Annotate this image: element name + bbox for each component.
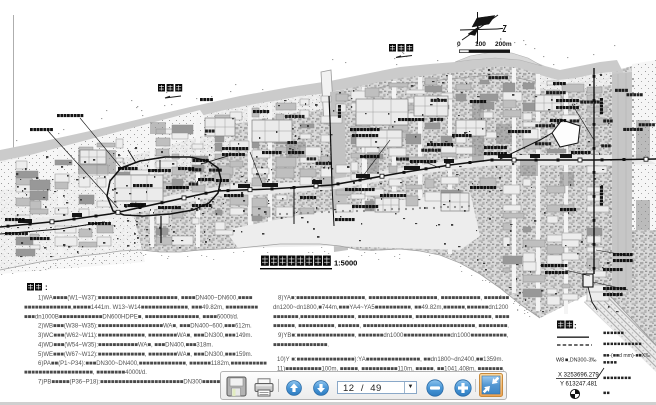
svg-text:‰: ‰ bbox=[591, 358, 597, 364]
svg-text:■■: ■■ bbox=[603, 390, 610, 396]
svg-text:■■■■■■■■■■■: ■■■■■■■■■■■ bbox=[603, 341, 642, 347]
svg-text:10)Y ■:■■■■■■■■■■■■■■■■):YA■■■: 10)Y ■:■■■■■■■■■■■■■■■■):YA■■■■■■■■■■■■■… bbox=[277, 357, 503, 363]
svg-text:■■■dn1000B■■■■■■■■■■■■DN600HDP: ■■■dn1000B■■■■■■■■■■■■DN600HDPE■, ■■■■■■… bbox=[24, 315, 239, 321]
svg-text:200m: 200m bbox=[495, 41, 512, 48]
svg-text:6)PA■■(P1~P34):■■■DN300~DN400,: 6)PA■■(P1~P34):■■■DN300~DN400,■■■■■■■■■■… bbox=[38, 361, 267, 367]
svg-text:■■■■■■■,■■■■■■■■■■■■■■■, ■■■■■: ■■■■■■■,■■■■■■■■■■■■■■■, ■■■■■■■■■■■■■■■… bbox=[273, 315, 510, 321]
svg-text:dn1200~dn1800,■744m,■■■YA4~YA5: dn1200~dn1800,■744m,■■■YA4~YA5■■■■■■■■■■… bbox=[273, 305, 509, 311]
svg-text:8)YA■:■■■■■■■■■■■■■■■■■■■, ■■■: 8)YA■:■■■■■■■■■■■■■■■■■■■, ■■■■■■■■■■■■■… bbox=[278, 296, 510, 302]
svg-text:X 3253696.279: X 3253696.279 bbox=[558, 373, 599, 379]
svg-text:2)WB■■■(W38~W35):■■■■■■■■■■■■■: 2)WB■■■(W38~W35):■■■■■■■■■■■■■■■■■■WA■, … bbox=[38, 324, 252, 330]
svg-text:5)WE■■■(W67~W12):■■■■■■■■■■■■■: 5)WE■■■(W67~W12):■■■■■■■■■■■■■, ■■■■■■■■… bbox=[38, 352, 253, 358]
svg-text:■,DN300-3: ■,DN300-3 bbox=[565, 358, 591, 364]
svg-text:4)WD■■■(W54~W35):■■■■■■■■■■■WA: 4)WD■■■(W54~W35):■■■■■■■■■■■WA■, ■■■DN40… bbox=[38, 343, 213, 349]
svg-text:W8: W8 bbox=[556, 358, 564, 364]
svg-text:■■■■■■■■: ■■■■■■■■ bbox=[603, 375, 631, 381]
svg-text:■■■■: ■■■■ bbox=[603, 360, 617, 366]
svg-text:0: 0 bbox=[457, 41, 461, 48]
svg-text::: : bbox=[45, 283, 48, 292]
svg-text:Y 613247.481: Y 613247.481 bbox=[560, 382, 598, 388]
svg-text:9)YB■:■■■■■■■■■■■■■■■■, ■■■■■■: 9)YB■:■■■■■■■■■■■■■■■■, ■■■■■■■dn1000■■■… bbox=[278, 333, 509, 339]
svg-text:■■■■■■■■■■■■■,■■■■■1441m. W13~: ■■■■■■■■■■■■■,■■■■■1441m. W13~W14■■■■■■■… bbox=[24, 305, 258, 311]
svg-text:■■■■■■, ■■■■■■■■■■, ■■■■■■, ■■: ■■■■■■, ■■■■■■■■■■, ■■■■■■, ■■■■■■■■■■■■… bbox=[273, 324, 509, 330]
svg-text:■■■■■■■■■■■■■■■■■■■, ■■■■■■■■4: ■■■■■■■■■■■■■■■■■■■, ■■■■■■■■4000t/d. bbox=[24, 370, 147, 376]
svg-text:1)WA■■■■(W1~W37):■■■■■■■■■■■■■: 1)WA■■■■(W1~W37):■■■■■■■■■■■■■■■■■■■■■■,… bbox=[38, 296, 253, 302]
svg-text:■■■■■■■■■■■■■■■.: ■■■■■■■■■■■■■■■. bbox=[273, 343, 329, 349]
svg-text:1:5000: 1:5000 bbox=[334, 259, 357, 268]
svg-text:100: 100 bbox=[475, 41, 486, 48]
svg-text:3)WC■■■(W62~W11):■■■■■■■■■■■■■: 3)WC■■■(W62~W11):■■■■■■■■■■■■■, ■■■■■■■■… bbox=[38, 333, 253, 339]
svg-text::: : bbox=[574, 322, 577, 331]
svg-text:■■-(■■d mm)-■■X‰: ■■-(■■d mm)-■■X‰ bbox=[603, 353, 651, 359]
svg-text:■■■■■■: ■■■■■■ bbox=[603, 330, 624, 336]
